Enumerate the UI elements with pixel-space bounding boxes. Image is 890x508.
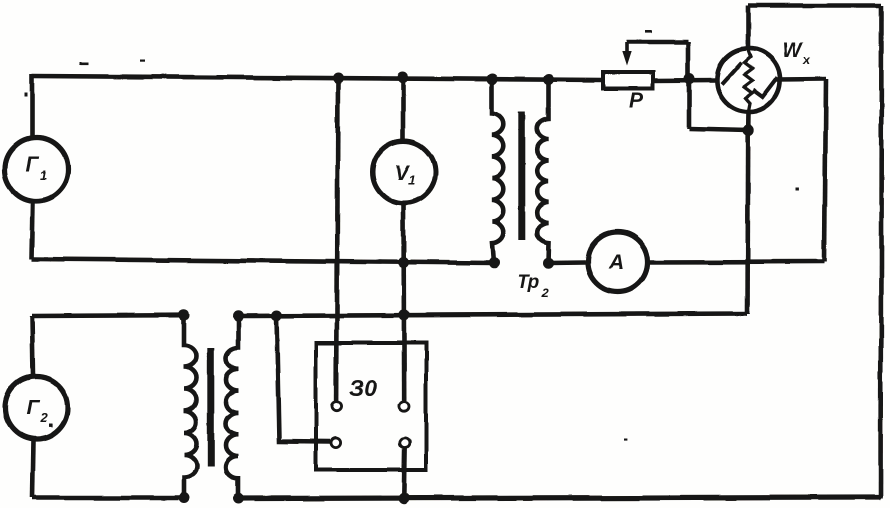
svg-text:A: A	[608, 251, 624, 274]
svg-text:Тр: Тр	[517, 272, 540, 293]
svg-text:З0: З0	[349, 375, 377, 401]
svg-text:Г: Г	[26, 153, 40, 176]
svg-text:2: 2	[541, 286, 549, 300]
svg-text:Г: Г	[26, 396, 40, 419]
svg-text:х: х	[802, 52, 811, 67]
svg-text:W: W	[782, 39, 804, 62]
svg-text:1: 1	[40, 167, 47, 182]
svg-text:2: 2	[39, 410, 48, 425]
svg-text:P: P	[629, 89, 644, 112]
svg-text:1: 1	[408, 173, 415, 188]
